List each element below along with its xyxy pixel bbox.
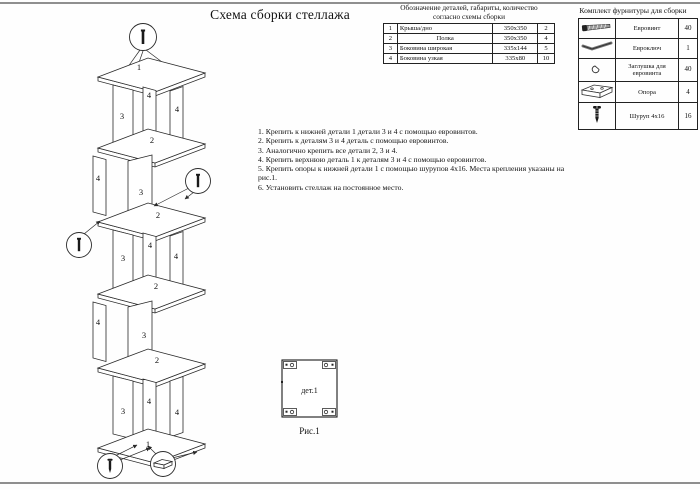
hardware-qty: 40 xyxy=(679,59,698,82)
hardware-table-title: Комплект фурнитуры для сборки xyxy=(568,6,698,15)
figure-label: дет.1 xyxy=(301,386,318,395)
instruction-item: 3. Аналогично крепить все детали 2, 3 и … xyxy=(258,146,570,155)
part-label: 3 xyxy=(121,253,125,263)
part-number: 4 xyxy=(384,54,398,64)
hardware-qty: 4 xyxy=(679,82,698,103)
instruction-item: 6. Установить стеллаж на постоянное мест… xyxy=(258,183,570,192)
euro-key-icon xyxy=(579,39,616,59)
table-row: Шуруп 4х16 16 xyxy=(579,103,698,130)
hardware-name: Заглушка для евровинта xyxy=(616,59,679,82)
hardware-name: Шуруп 4х16 xyxy=(616,103,679,130)
instruction-item: 5. Крепить опоры к нижней детали 1 с пом… xyxy=(258,164,570,183)
euro-screw-icon xyxy=(579,19,616,39)
table-row: 1 Крыша/дно 350х350 2 xyxy=(384,24,555,34)
hardware-table-grid: Евровинт 40 Евроключ 1 xyxy=(578,18,698,130)
part-label: 3 xyxy=(139,187,143,197)
table-row: Евровинт 40 xyxy=(579,19,698,39)
part-label: 3 xyxy=(120,111,124,121)
part-label: 2 xyxy=(154,281,158,291)
parts-table: Обозначение деталей, габариты, количеств… xyxy=(383,4,555,64)
hardware-table: Комплект фурнитуры для сборки Евровинт 4… xyxy=(568,6,698,130)
table-row: 2 Полка 350х350 4 xyxy=(384,34,555,44)
support-icon xyxy=(579,82,616,103)
table-row: Евроключ 1 xyxy=(579,39,698,59)
hardware-name: Опора xyxy=(616,82,679,103)
euro-screw-callout xyxy=(154,169,211,207)
part-qty: 2 xyxy=(538,24,555,34)
table-row: Опора 4 xyxy=(579,82,698,103)
instructions-list: 1. Крепить к нижней детали 1 детали 3 и … xyxy=(258,127,570,192)
screw-icon xyxy=(579,103,616,130)
part-size: 335х144 xyxy=(493,44,538,54)
part-number: 1 xyxy=(384,24,398,34)
parts-table-title-line2: согласно схемы сборки xyxy=(383,13,555,22)
part-number: 3 xyxy=(384,44,398,54)
part-label: 1 xyxy=(137,62,141,72)
part-label: 2 xyxy=(156,210,160,220)
diagram-part-labels: 1 3 4 4 2 4 3 2 3 4 4 2 4 3 2 3 4 4 1 xyxy=(96,62,180,449)
shelf-assembly-diagram: 1 3 4 4 2 4 3 2 3 4 4 2 4 3 2 3 4 4 1 xyxy=(55,15,255,489)
hardware-qty: 40 xyxy=(679,19,698,39)
part-name: Полка xyxy=(397,34,493,44)
figure-caption: Рис.1 xyxy=(299,426,320,436)
hardware-name: Евровинт xyxy=(616,19,679,39)
hardware-qty: 1 xyxy=(679,39,698,59)
table-row: 4 Боковина узкая 335х80 10 xyxy=(384,54,555,64)
hardware-name: Евроключ xyxy=(616,39,679,59)
page-top-edge xyxy=(0,2,700,4)
table-row: 3 Боковина широкая 335х144 5 xyxy=(384,44,555,54)
instruction-item: 2. Крепить к деталям 3 и 4 деталь с помо… xyxy=(258,136,570,145)
assembly-instruction-sheet: { "page": { "title": "Схема сборки стелл… xyxy=(0,0,700,489)
part-name: Боковина широкая xyxy=(397,44,493,54)
part-size: 350х350 xyxy=(493,34,538,44)
part-label: 3 xyxy=(142,330,146,340)
figure-det1: дет.1 Рис.1 xyxy=(276,354,348,443)
hardware-qty: 16 xyxy=(679,103,698,130)
plug-icon xyxy=(579,59,616,82)
part-size: 350х350 xyxy=(493,24,538,34)
part-size: 335х80 xyxy=(493,54,538,64)
instruction-item: 1. Крепить к нижней детали 1 детали 3 и … xyxy=(258,127,570,136)
instruction-item: 4. Крепить верхнюю деталь 1 к деталям 3 … xyxy=(258,155,570,164)
part-label: 3 xyxy=(121,406,125,416)
part-qty: 4 xyxy=(538,34,555,44)
part-name: Крыша/дно xyxy=(397,24,493,34)
part-name: Боковина узкая xyxy=(397,54,493,64)
parts-table-grid: 1 Крыша/дно 350х350 2 2 Полка 350х350 4 … xyxy=(383,23,555,64)
euro-screw-callout xyxy=(67,221,101,258)
part-qty: 5 xyxy=(538,44,555,54)
part-qty: 10 xyxy=(538,54,555,64)
part-label: 2 xyxy=(155,355,159,365)
table-row: Заглушка для евровинта 40 xyxy=(579,59,698,82)
part-label: 2 xyxy=(150,135,154,145)
part-number: 2 xyxy=(384,34,398,44)
part-label: 1 xyxy=(146,439,150,449)
